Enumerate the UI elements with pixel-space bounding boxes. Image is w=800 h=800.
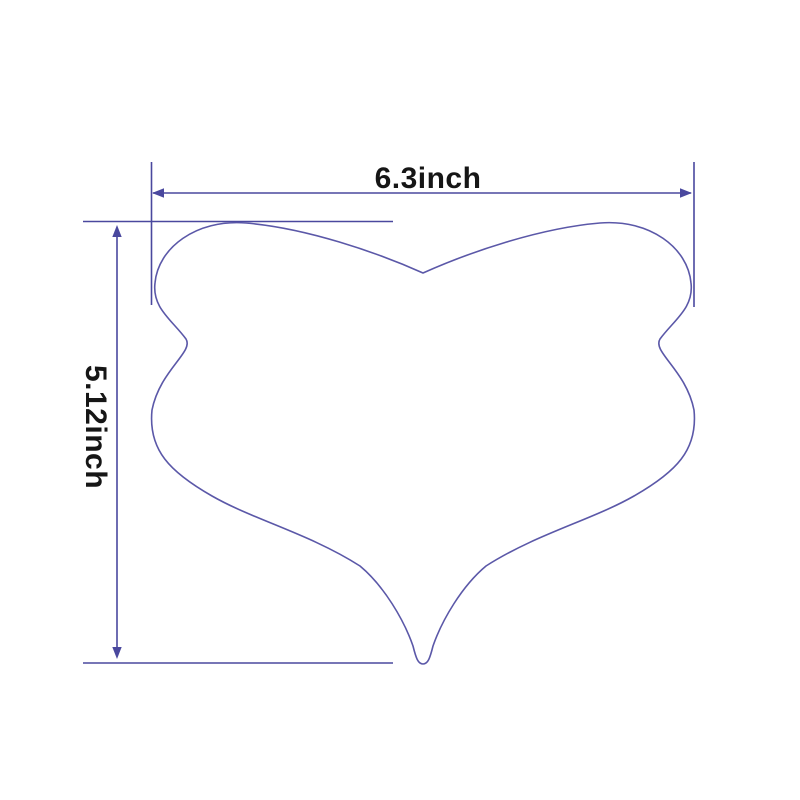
width-arrow-left-icon bbox=[152, 188, 164, 197]
height-arrow-down-icon bbox=[112, 647, 121, 659]
product-shape-outline bbox=[152, 223, 695, 664]
height-arrow-up-icon bbox=[112, 225, 121, 237]
height-dimension-label: 5.12inch bbox=[79, 365, 112, 489]
dimension-diagram: 6.3inch 5.12inch bbox=[0, 0, 800, 800]
width-arrow-right-icon bbox=[680, 188, 692, 197]
width-dimension-label: 6.3inch bbox=[375, 162, 482, 195]
